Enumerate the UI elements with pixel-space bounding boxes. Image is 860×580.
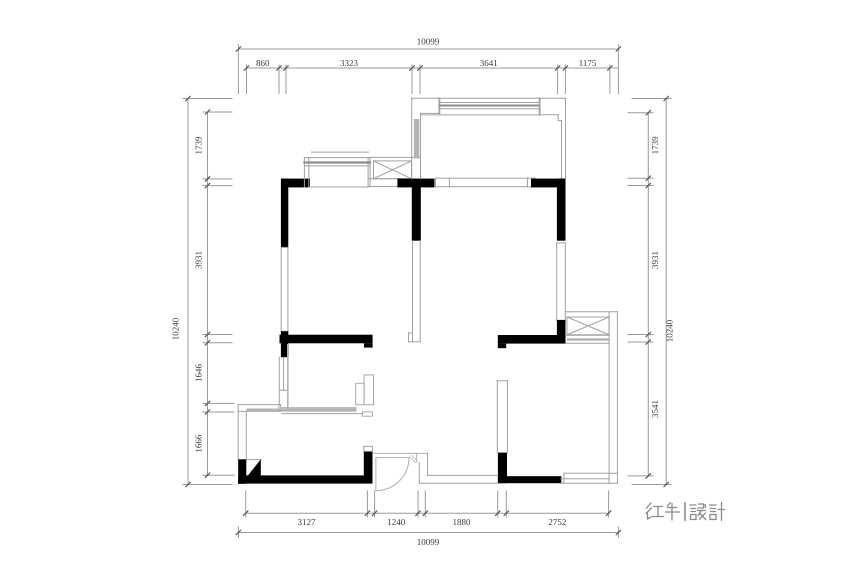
svg-text:10099: 10099 [417, 537, 440, 547]
svg-text:10099: 10099 [417, 37, 440, 47]
svg-text:3641: 3641 [480, 58, 498, 68]
svg-text:860: 860 [256, 58, 270, 68]
svg-text:1175: 1175 [579, 58, 597, 68]
svg-text:3323: 3323 [340, 58, 359, 68]
svg-text:1880: 1880 [453, 517, 472, 527]
svg-text:3127: 3127 [298, 517, 317, 527]
svg-text:3931: 3931 [650, 251, 660, 269]
svg-text:3541: 3541 [650, 400, 660, 418]
svg-text:1666: 1666 [194, 434, 204, 453]
svg-text:1739: 1739 [194, 136, 204, 155]
svg-text:10240: 10240 [171, 317, 181, 340]
svg-text:1646: 1646 [194, 364, 204, 383]
svg-text:1739: 1739 [650, 136, 660, 155]
svg-text:2752: 2752 [548, 517, 566, 527]
svg-text:3931: 3931 [194, 251, 204, 269]
svg-text:1240: 1240 [387, 517, 406, 527]
svg-text:10240: 10240 [665, 319, 675, 342]
